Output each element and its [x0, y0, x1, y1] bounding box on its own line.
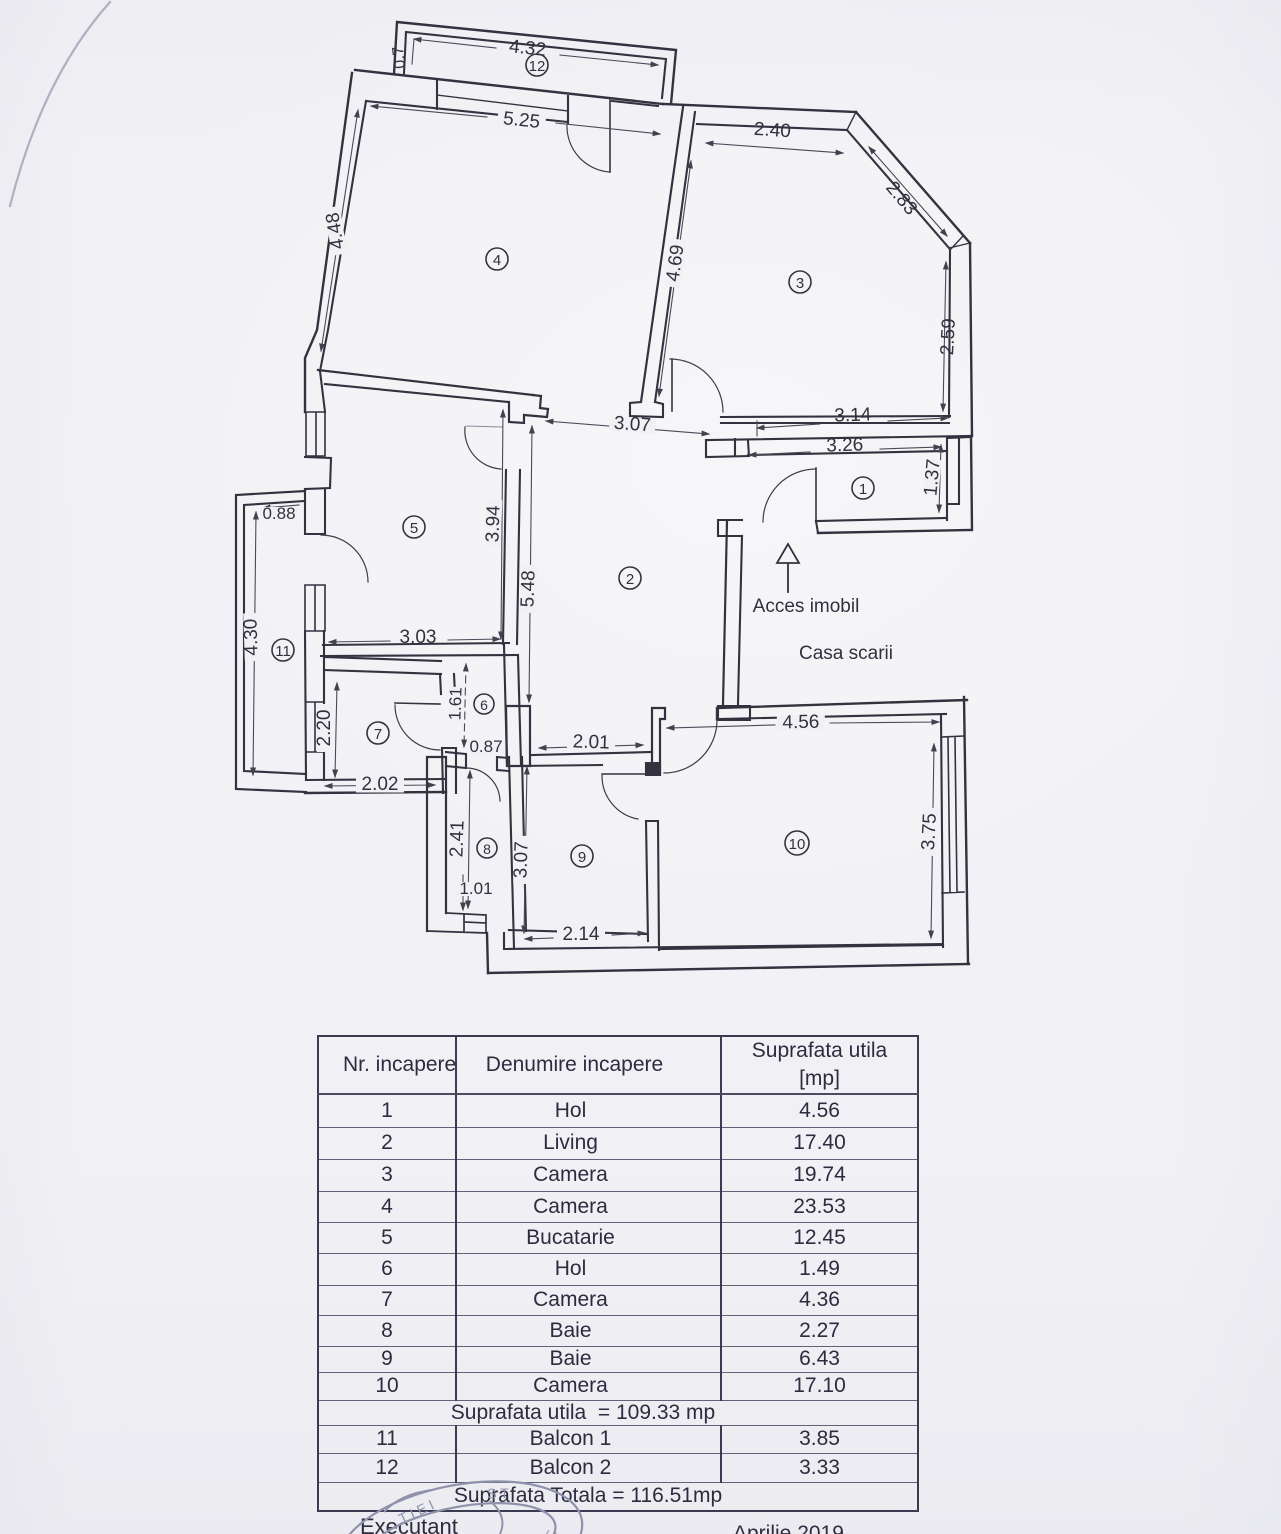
svg-text:0.87: 0.87: [469, 737, 502, 756]
svg-text:2.40: 2.40: [753, 119, 791, 143]
svg-text:3.26: 3.26: [826, 434, 864, 456]
svg-text:4.56: 4.56: [782, 712, 819, 734]
svg-text:8: 8: [483, 841, 491, 857]
svg-text:4.69: 4.69: [663, 243, 689, 283]
svg-text:1.61: 1.61: [445, 687, 465, 721]
svg-text:3.07: 3.07: [613, 413, 651, 437]
svg-text:2: 2: [626, 571, 634, 588]
svg-text:11: 11: [275, 643, 291, 660]
svg-text:2.01: 2.01: [572, 731, 610, 753]
svg-text:2.20: 2.20: [314, 710, 335, 747]
svg-text:3.03: 3.03: [400, 627, 437, 648]
svg-text:6: 6: [480, 697, 488, 713]
svg-text:1.37: 1.37: [920, 458, 944, 497]
svg-text:2.14: 2.14: [563, 924, 600, 945]
svg-text:5: 5: [410, 520, 418, 537]
svg-text:Acces imobil: Acces imobil: [753, 596, 860, 617]
svg-text:12: 12: [529, 58, 546, 75]
svg-text:4.30: 4.30: [240, 618, 262, 656]
svg-text:3.07: 3.07: [510, 841, 532, 879]
svg-text:0.7: 0.7: [390, 45, 409, 69]
svg-text:3: 3: [796, 275, 804, 292]
svg-text:2.41: 2.41: [446, 820, 468, 858]
svg-text:1: 1: [859, 481, 867, 498]
svg-text:2.59: 2.59: [937, 318, 960, 356]
svg-text:3.14: 3.14: [834, 404, 872, 426]
svg-text:5.25: 5.25: [502, 108, 541, 133]
svg-text:9: 9: [578, 849, 586, 866]
svg-text:2.83: 2.83: [881, 178, 921, 220]
svg-text:4: 4: [493, 252, 501, 269]
svg-text:3.94: 3.94: [482, 505, 504, 543]
svg-text:3.75: 3.75: [918, 813, 941, 851]
svg-text:10: 10: [789, 836, 806, 853]
svg-text:2.02: 2.02: [362, 774, 399, 795]
svg-text:4.48: 4.48: [322, 211, 349, 251]
svg-text:5.48: 5.48: [517, 570, 539, 608]
svg-text:7: 7: [374, 726, 382, 743]
svg-text:1.01: 1.01: [459, 879, 492, 898]
svg-text:0.88: 0.88: [262, 504, 295, 523]
svg-text:Casa scarii: Casa scarii: [799, 643, 893, 664]
